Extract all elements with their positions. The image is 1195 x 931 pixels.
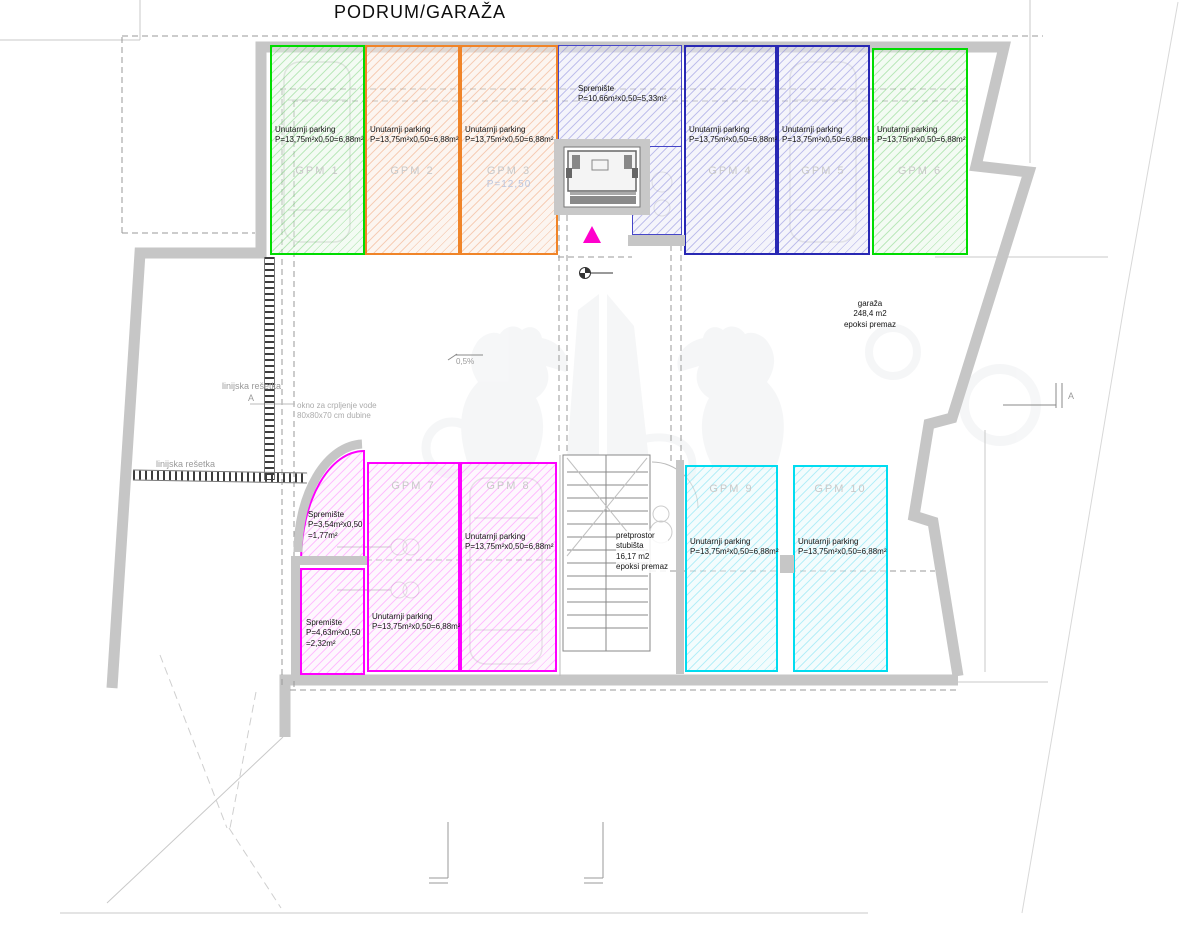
stall-label: Unutarnji parking <box>782 125 871 135</box>
room-area: 16,17 m2 <box>616 552 668 562</box>
section-marker-right: A <box>1068 391 1074 403</box>
linear-grate-vertical <box>264 257 275 480</box>
room-label: garaža <box>820 299 920 309</box>
stall-area: P=13,75m²x0,50=6,88m² <box>798 547 887 557</box>
parking-stall-gpm-6: Unutarnji parkingP=13,75m²x0,50=6,88m² G… <box>872 48 968 255</box>
level-marker-icon <box>580 268 614 279</box>
floor-plan-basement-garage: Unutarnji parkingP=13,75m²x0,50=6,88m² G… <box>0 0 1195 931</box>
storage-room-a: SpremišteP=3,54m²x0,50=1,77m² <box>300 450 365 565</box>
parking-stall-gpm-8: GPM 8 Unutarnji parkingP=13,75m²x0,50=6,… <box>460 462 557 672</box>
sump-note: okno za crpljenje vode 80x80x70 cm dubin… <box>297 401 377 422</box>
room-label: pretprostor <box>616 531 668 541</box>
stall-id: GPM 7 <box>369 480 458 492</box>
room-area: 248,4 m2 <box>820 309 920 319</box>
stall-label: Unutarnji parking <box>465 532 554 542</box>
room-area: P=10,66m²x0,50=5,33m² <box>578 94 667 104</box>
stall-id: GPM 6 <box>874 165 966 177</box>
stall-area: P=13,75m²x0,50=6,88m² <box>690 547 779 557</box>
building-watermark-icon <box>426 294 1036 480</box>
grate-label-1-sub: A <box>248 393 254 405</box>
parking-stall-gpm-10: GPM 10 Unutarnji parkingP=13,75m²x0,50=6… <box>793 465 888 672</box>
stall-id: GPM 4 <box>686 165 775 177</box>
stall-id: GPM 9 <box>687 483 776 495</box>
parking-stall-gpm-1: Unutarnji parkingP=13,75m²x0,50=6,88m² G… <box>270 45 365 255</box>
room-finish: epoksi premaz <box>820 320 920 330</box>
room-area-result: =1,77m² <box>308 531 362 541</box>
plan-title: PODRUM/GARAŽA <box>334 2 506 23</box>
storage-zone-top-column <box>632 147 682 235</box>
parking-stall-gpm-7: GPM 7 Unutarnji parkingP=13,75m²x0,50=6,… <box>367 462 460 672</box>
parking-stall-gpm-2: Unutarnji parkingP=13,75m²x0,50=6,88m² G… <box>365 45 460 255</box>
parking-stall-gpm-4: Unutarnji parkingP=13,75m²x0,50=6,88m² G… <box>684 45 777 255</box>
stall-label: Unutarnji parking <box>689 125 778 135</box>
sump-note-line: 80x80x70 cm dubine <box>297 411 377 421</box>
storage-room-b: SpremišteP=4,63m²x0,50=2,32m² <box>300 568 365 675</box>
stall-label: Unutarnji parking <box>798 537 887 547</box>
room-label: Spremište <box>308 510 362 520</box>
stall-area: P=13,75m²x0,50=6,88m² <box>689 135 778 145</box>
linear-grate-horizontal <box>133 469 307 483</box>
stall-extra-label: P=12,50 <box>462 179 556 190</box>
stall-label: Unutarnji parking <box>690 537 779 547</box>
stall-id: GPM 8 <box>462 480 555 492</box>
stair-lobby-label: pretprostor stubišta 16,17 m2 epoksi pre… <box>616 531 668 573</box>
stall-area: P=13,75m²x0,50=6,88m² <box>370 135 459 145</box>
stall-label: Unutarnji parking <box>370 125 459 135</box>
stall-id: GPM 3 <box>462 165 556 177</box>
stall-label: Unutarnji parking <box>275 125 364 135</box>
stall-id: GPM 1 <box>272 165 363 177</box>
stall-area: P=13,75m²x0,50=6,88m² <box>782 135 871 145</box>
grate-label-1: linijska rešetka <box>222 381 281 393</box>
room-area: P=3,54m²x0,50 <box>308 520 362 530</box>
sump-note-line: okno za crpljenje vode <box>297 401 377 411</box>
section-line-right <box>1003 383 1062 408</box>
stall-area: P=13,75m²x0,50=6,88m² <box>372 622 461 632</box>
parking-stall-gpm-5: Unutarnji parkingP=13,75m²x0,50=6,88m² G… <box>777 45 870 255</box>
grate-label-2: linijska rešetka <box>156 459 215 471</box>
room-label: Spremište <box>306 618 360 628</box>
stall-area: P=13,75m²x0,50=6,88m² <box>465 542 554 552</box>
stall-area: P=13,75m²x0,50=6,88m² <box>877 135 966 145</box>
stall-area: P=13,75m²x0,50=6,88m² <box>465 135 554 145</box>
stall-id: GPM 10 <box>795 483 886 495</box>
room-area: P=4,63m²x0,50 <box>306 628 360 638</box>
parking-stall-gpm-9: GPM 9 Unutarnji parkingP=13,75m²x0,50=6,… <box>685 465 778 672</box>
stall-id: GPM 2 <box>367 165 458 177</box>
entrance-triangle-icon <box>583 226 601 243</box>
room-finish: epoksi premaz <box>616 562 668 572</box>
storage-top-label: Spremište P=10,66m²x0,50=5,33m² <box>578 84 667 105</box>
stall-id: GPM 5 <box>779 165 868 177</box>
garage-area-label: garaža 248,4 m2 epoksi premaz <box>820 299 920 330</box>
corner-marks <box>429 822 603 883</box>
parking-stall-gpm-3: Unutarnji parkingP=13,75m²x0,50=6,88m² G… <box>460 45 558 255</box>
stall-label: Unutarnji parking <box>372 612 461 622</box>
slope-label: 0,5% <box>456 357 474 367</box>
stall-label: Unutarnji parking <box>877 125 966 135</box>
stall-label: Unutarnji parking <box>465 125 554 135</box>
drain-guidelines <box>160 655 281 908</box>
room-label: stubišta <box>616 541 668 551</box>
room-label: Spremište <box>578 84 667 94</box>
room-area-result: =2,32m² <box>306 639 360 649</box>
stall-area: P=13,75m²x0,50=6,88m² <box>275 135 364 145</box>
